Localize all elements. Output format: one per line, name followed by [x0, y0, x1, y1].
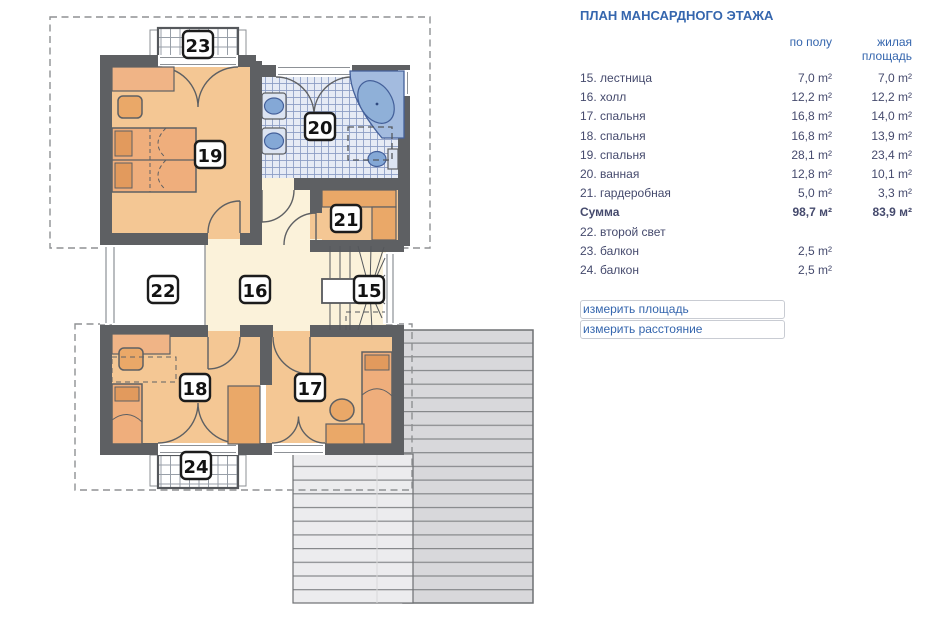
- table-row: 23. балкон 2,5 m²: [580, 242, 916, 261]
- svg-text:20: 20: [307, 118, 332, 139]
- window-right: [383, 253, 399, 324]
- room-label-18: 18: [180, 374, 210, 401]
- sink-symbol: [262, 128, 286, 154]
- svg-text:24: 24: [183, 457, 208, 478]
- room-label-23: 23: [183, 31, 213, 58]
- window-bath-top: [276, 65, 352, 77]
- table-row: 22. второй свет: [580, 223, 916, 242]
- svg-text:22: 22: [150, 281, 175, 302]
- page-title: ПЛАН МАНСАРДНОГО ЭТАЖА: [580, 8, 916, 23]
- col-header-living: жилая площадь: [834, 35, 916, 63]
- svg-text:15: 15: [356, 281, 381, 302]
- room-label-15: 15: [354, 276, 384, 303]
- room-label-22: 22: [148, 276, 178, 303]
- table-row: 24. балкон 2,5 m²: [580, 261, 916, 280]
- roof-plane-lower: [293, 454, 413, 603]
- table-header: по полу жилая площадь: [580, 35, 916, 63]
- svg-text:17: 17: [297, 379, 322, 400]
- room-label-19: 19: [195, 141, 225, 168]
- table-row: 19. спальня 28,1 m² 23,4 m²: [580, 146, 916, 165]
- svg-text:18: 18: [182, 379, 207, 400]
- table-row: 15. лестница 7,0 m² 7,0 m²: [580, 69, 916, 88]
- room-label-16: 16: [240, 276, 270, 303]
- table-row-sum: Сумма 98,7 м² 83,9 м²: [580, 203, 916, 222]
- table-row: 20. ванная 12,8 m² 10,1 m²: [580, 165, 916, 184]
- table-row: 18. спальня 16,8 m² 13,9 m²: [580, 127, 916, 146]
- measure-distance-link[interactable]: измерить расстояние: [580, 320, 785, 339]
- table-row: 16. холл 12,2 m² 12,2 m²: [580, 88, 916, 107]
- col-header-floor: по полу: [750, 35, 834, 63]
- room-label-21: 21: [331, 205, 361, 232]
- room-label-20: 20: [305, 113, 335, 140]
- svg-text:23: 23: [185, 36, 210, 57]
- door-sill-room17: [272, 443, 325, 455]
- floor-plan-drawing: 23 19 20 21 22 16 15 18: [0, 0, 570, 644]
- table-row: 21. гардеробная 5,0 m² 3,3 m²: [580, 184, 916, 203]
- room-label-17: 17: [295, 374, 325, 401]
- area-table-panel: ПЛАН МАНСАРДНОГО ЭТАЖА по полу жилая пло…: [580, 8, 916, 340]
- roof-plane-right: [403, 330, 533, 603]
- measure-tools: измерить площадь измерить расстояние: [580, 300, 916, 339]
- measure-area-link[interactable]: измерить площадь: [580, 300, 785, 319]
- svg-text:19: 19: [197, 146, 222, 167]
- table-row: 17. спальня 16,8 m² 14,0 m²: [580, 107, 916, 126]
- sink-symbol: [262, 93, 286, 119]
- room-label-24: 24: [181, 452, 211, 479]
- svg-text:21: 21: [333, 210, 358, 231]
- window-left: [100, 246, 118, 324]
- svg-text:16: 16: [242, 281, 267, 302]
- floor-plan-page: 23 19 20 21 22 16 15 18: [0, 0, 940, 644]
